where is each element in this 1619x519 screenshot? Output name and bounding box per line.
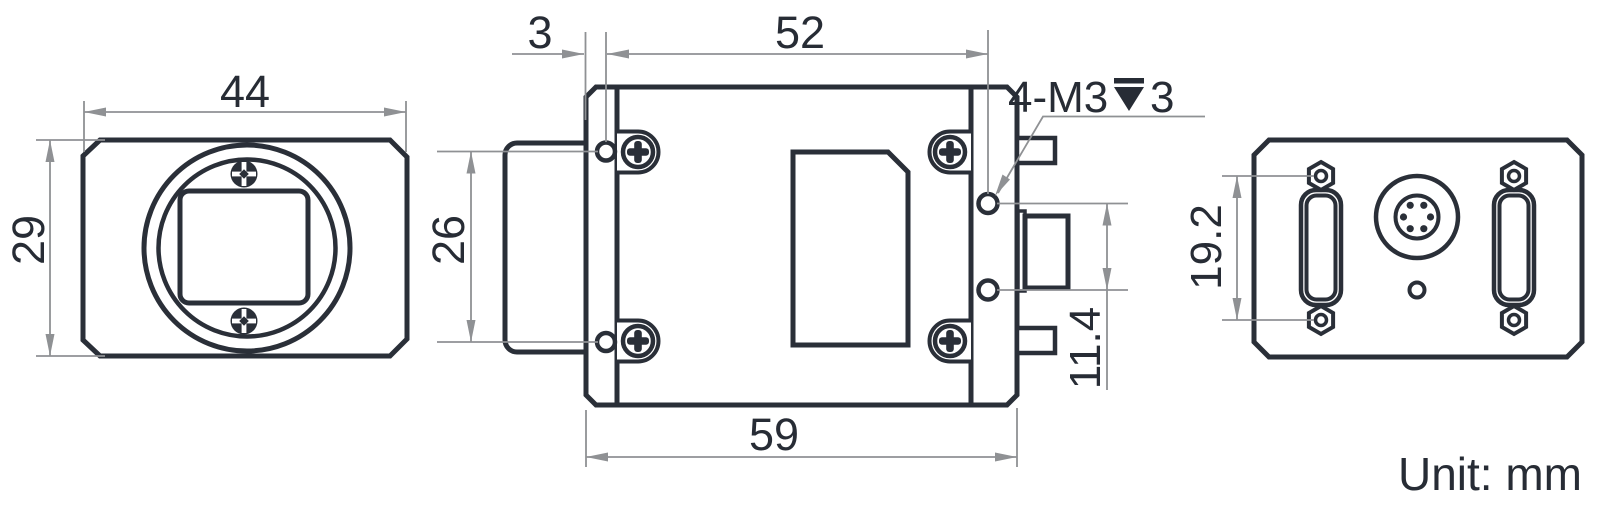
dim-overall-length: 59 — [586, 408, 1017, 467]
dsub-connector-right — [1494, 190, 1534, 305]
arrowhead — [1233, 298, 1242, 320]
lens-barrel — [505, 143, 597, 352]
rear-tab — [1017, 328, 1055, 353]
arrowhead — [84, 108, 106, 117]
dim-label-52: 52 — [775, 7, 825, 58]
depth-symbol-icon — [1114, 78, 1144, 111]
dim-label-26: 26 — [423, 215, 474, 265]
dim-label-19-2: 19.2 — [1182, 204, 1231, 290]
front-plate-hole — [597, 333, 615, 351]
rear-view: 19.2 — [1182, 140, 1582, 357]
arrowhead — [467, 152, 476, 174]
arrowhead — [1103, 268, 1112, 290]
led-indicator-hole — [1410, 283, 1425, 298]
dim-label-29: 29 — [3, 215, 54, 265]
connector-pin — [1420, 225, 1427, 232]
arrowhead — [607, 50, 629, 59]
dim-label-11-4: 11.4 — [1061, 307, 1110, 389]
arrowhead — [562, 50, 584, 59]
top-screw-icon — [623, 137, 653, 167]
dimension-drawing-page: 44 29 — [0, 0, 1619, 519]
dim-label-44: 44 — [220, 66, 270, 117]
connector-pin — [1407, 202, 1414, 209]
arrowhead — [1103, 204, 1112, 226]
arrowhead — [1233, 176, 1242, 198]
arrowhead — [995, 453, 1017, 462]
front-screw-top-icon — [231, 161, 258, 188]
dim-label-59: 59 — [749, 409, 799, 460]
connector-pin — [1400, 213, 1407, 220]
arrowhead — [586, 453, 608, 462]
connector-pin — [1427, 213, 1434, 220]
arrowhead — [966, 50, 988, 59]
connector-pin — [1407, 225, 1414, 232]
front-plate-hole — [597, 143, 615, 161]
m3-tapped-hole — [979, 281, 998, 300]
dim-label-3: 3 — [527, 7, 552, 58]
sensor-aperture — [180, 191, 308, 303]
connector-side — [1025, 216, 1068, 288]
hex-jackscrew-icon — [1502, 306, 1526, 334]
front-screw-bottom-icon — [231, 308, 258, 335]
front-view: 44 29 — [3, 66, 407, 356]
unit-note: Unit: mm — [1398, 448, 1582, 500]
top-screw-icon — [935, 326, 965, 356]
camera-dimension-drawing: 44 29 — [0, 0, 1619, 519]
label-plate — [793, 152, 908, 345]
arrowhead — [384, 108, 406, 117]
arrowhead — [467, 320, 476, 342]
top-screw-icon — [935, 137, 965, 167]
thread-callout-prefix: 4-M3 — [1008, 73, 1108, 122]
thread-callout-depth: 3 — [1150, 73, 1174, 122]
connector-pin — [1420, 202, 1427, 209]
m3-tapped-hole — [979, 194, 998, 213]
top-view: 26 3 52 59 — [423, 7, 1205, 467]
thread-callout: 4-M3 3 — [995, 73, 1205, 196]
top-screw-icon — [623, 326, 653, 356]
hex-jackscrew-icon — [1502, 162, 1526, 190]
arrowhead — [46, 140, 55, 162]
arrowhead — [46, 334, 55, 356]
circular-connector — [1376, 176, 1458, 258]
dsub-connector-left — [1301, 190, 1341, 305]
